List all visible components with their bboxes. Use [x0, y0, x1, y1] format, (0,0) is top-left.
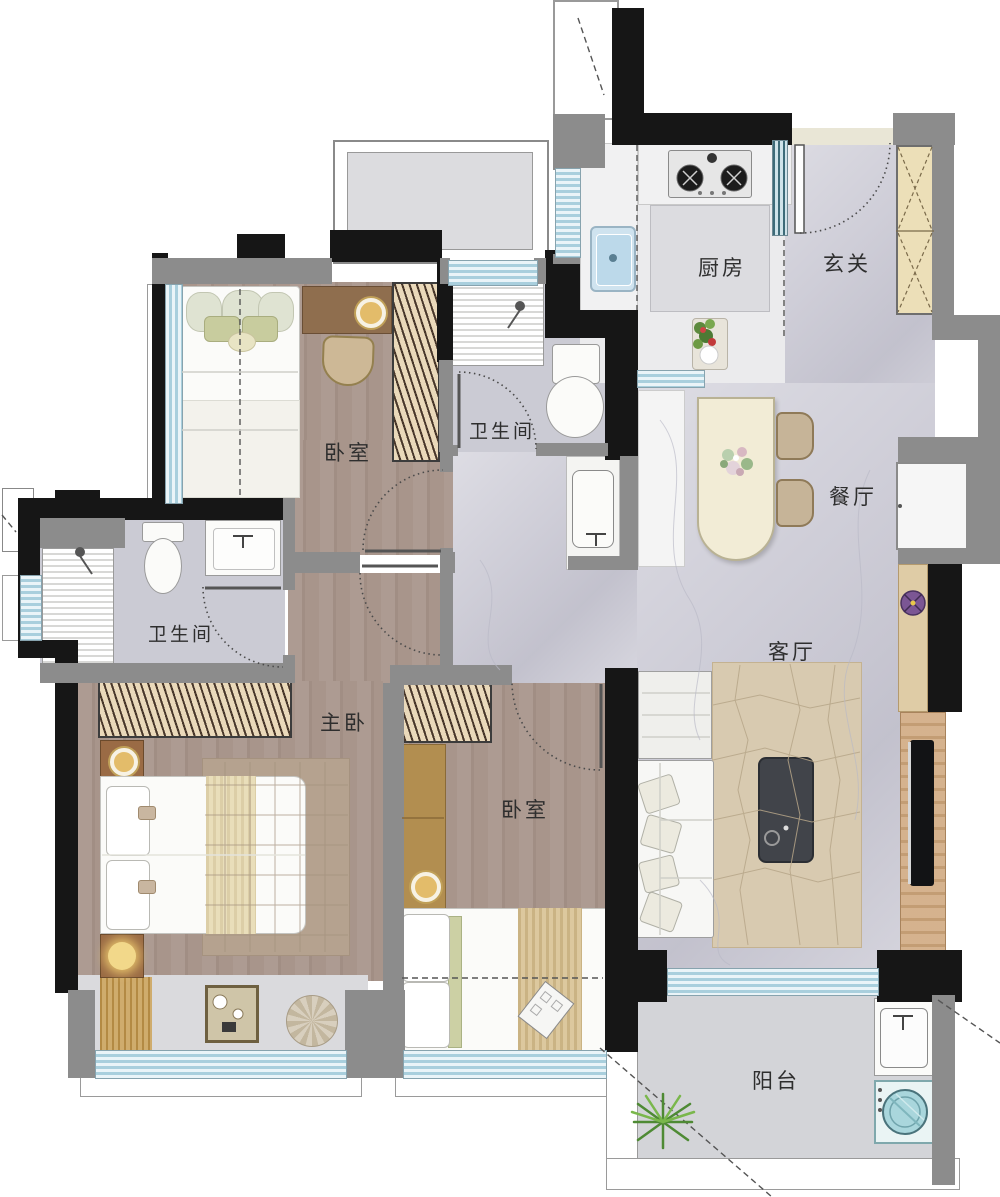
balcony-sink-basin [880, 1008, 928, 1068]
room-label-bathroom-main: 卫生间 [469, 417, 535, 444]
washing-machine [874, 1080, 934, 1144]
wall-gray [898, 548, 1000, 564]
window [95, 1050, 347, 1079]
shoe-cabinet [896, 145, 934, 315]
wardrobe-master [98, 680, 292, 738]
room-label-kitchen: 厨房 [698, 252, 746, 282]
wall [55, 655, 78, 993]
window [403, 1050, 607, 1079]
accent-pillow [138, 880, 156, 894]
pillow [402, 914, 450, 982]
window [555, 168, 581, 258]
wall-gray [288, 552, 360, 573]
vegetable-basket [692, 318, 728, 370]
pillow [106, 860, 150, 930]
bed-runner-master [206, 776, 256, 934]
window-sill-master [80, 1077, 362, 1097]
kitchen-sink-basin [596, 234, 632, 286]
wall-gray [40, 518, 125, 548]
accent-pillow [138, 806, 156, 820]
wall-gray [932, 315, 1000, 340]
cushion-round [228, 332, 256, 352]
room-label-bathroom-master: 卫生间 [148, 620, 214, 647]
room-label-living: 客厅 [768, 636, 816, 666]
desk-lamp-south [411, 872, 441, 902]
console-shelf [898, 564, 928, 712]
window [448, 260, 538, 286]
dining-table [697, 397, 775, 561]
wall-gray [620, 456, 638, 570]
shower-main [452, 282, 544, 366]
wall-gray [966, 462, 1000, 562]
duct-shaft [553, 0, 619, 120]
wall [55, 490, 100, 518]
wall-gray [536, 443, 608, 456]
entry-threshold [788, 128, 898, 145]
side-table [638, 671, 712, 759]
bay-wood-runner [100, 977, 152, 1051]
wall-gray [40, 663, 290, 683]
room-label-bedroom-north: 卧室 [324, 437, 372, 467]
tv [910, 740, 934, 886]
wall-gray [68, 990, 95, 1078]
cushion-green-strip [448, 916, 462, 1048]
vanity-sink-main [572, 470, 614, 548]
wall [612, 113, 792, 145]
tray-with-cups [205, 985, 259, 1043]
glass-panel-entry [772, 140, 788, 236]
wall [928, 558, 962, 712]
dining-chair [776, 479, 814, 527]
fridge-niche [896, 462, 968, 550]
sliding-door-balcony [667, 968, 879, 996]
room-label-master-bedroom: 主卧 [320, 707, 368, 737]
vanity-basin-master [213, 528, 275, 570]
floor-plan: 厨房 玄关 卫生间 卧室 卫生间 主卧 卧室 餐厅 客厅 阳台 [0, 0, 1000, 1197]
pillow [402, 982, 450, 1048]
wall [330, 230, 442, 262]
wall [605, 338, 638, 460]
wall-gray [345, 990, 405, 1078]
wall-gray [440, 552, 455, 573]
wall [637, 950, 667, 1002]
wall-gray [390, 665, 512, 685]
toilet-master-bowl [144, 538, 182, 594]
bed-north-blanket [180, 400, 300, 498]
wardrobe-south [397, 681, 492, 743]
wall-gray [439, 360, 453, 452]
round-cushion [286, 995, 338, 1047]
bed-runner-south [518, 908, 582, 1053]
wardrobe-north [392, 282, 440, 462]
toilet-main-bowl [546, 376, 604, 438]
wall-gray [893, 113, 955, 145]
wall-gray [932, 995, 955, 1185]
wall-gray [568, 556, 638, 570]
window-sill-south [395, 1077, 615, 1097]
wall [605, 668, 638, 1052]
tv-screen-edge [908, 742, 911, 884]
wall-gray [932, 143, 954, 333]
nightstand-lamp [110, 748, 138, 776]
room-label-bedroom-south: 卧室 [501, 794, 549, 824]
balcony-rail-bottom [606, 1158, 960, 1190]
window [165, 284, 183, 504]
desk-lamp-north [356, 298, 386, 328]
sliding-door-kitchen [637, 370, 705, 388]
sideboard-cabinet [638, 390, 685, 567]
dining-chair [776, 412, 814, 460]
room-label-balcony: 阳台 [752, 1065, 800, 1095]
stove [668, 150, 752, 198]
room-label-dining: 餐厅 [829, 481, 877, 511]
wall-gray [283, 655, 295, 683]
wall [545, 310, 638, 338]
window [20, 575, 42, 641]
room-label-entry: 玄关 [823, 248, 871, 278]
pillow [106, 786, 150, 856]
coffee-table [758, 757, 814, 863]
wall-gray [283, 498, 295, 590]
wall-gray [898, 437, 1000, 462]
wall-gray [445, 445, 458, 456]
nightstand-lamp [108, 942, 136, 970]
wall-gray [152, 258, 332, 284]
